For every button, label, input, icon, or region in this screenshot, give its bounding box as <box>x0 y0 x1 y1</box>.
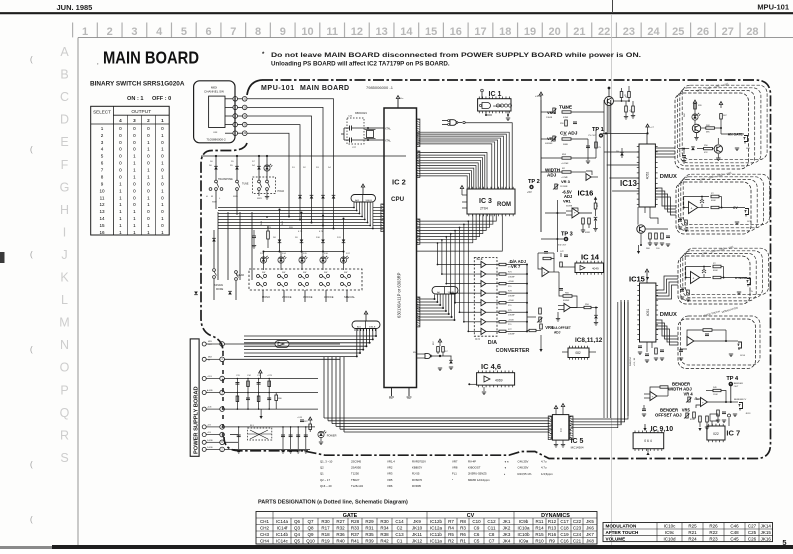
svg-text:16: 16 <box>450 26 462 38</box>
svg-text:JK11: JK11 <box>412 532 422 537</box>
svg-text:0: 0 <box>119 168 122 173</box>
svg-text:HOLD: HOLD <box>278 190 285 193</box>
svg-text:C22: C22 <box>573 519 582 524</box>
svg-text:0: 0 <box>119 147 122 152</box>
svg-text:0: 0 <box>119 133 122 138</box>
svg-text:0: 0 <box>147 133 150 138</box>
svg-text:R4: R4 <box>448 525 454 530</box>
svg-text:VR3: VR3 <box>387 472 393 476</box>
svg-text:0: 0 <box>119 174 122 179</box>
svg-text:TRANSPOSE: TRANSPOSE <box>218 178 233 181</box>
svg-text:0: 0 <box>119 154 122 159</box>
svg-text:E: E <box>60 135 68 149</box>
svg-text:0: 0 <box>147 161 150 166</box>
svg-text:R24: R24 <box>688 536 697 541</box>
svg-text:19: 19 <box>524 26 536 38</box>
svg-text:A: A <box>60 45 69 59</box>
svg-text:TP 1: TP 1 <box>592 127 604 133</box>
svg-text:13048: 13048 <box>546 117 553 119</box>
svg-text:Q2: Q2 <box>320 466 324 470</box>
svg-text:D: D <box>60 113 69 127</box>
svg-text:C2: C2 <box>397 525 403 530</box>
svg-text:7985006000 -1: 7985006000 -1 <box>366 85 394 90</box>
svg-text:13: 13 <box>376 26 388 38</box>
svg-text:0: 0 <box>161 209 164 214</box>
svg-text:23: 23 <box>623 26 635 38</box>
svg-text:C9: C9 <box>474 525 480 530</box>
svg-text:10: 10 <box>301 26 313 38</box>
svg-text:CH1: CH1 <box>260 519 269 524</box>
svg-text:IC9c: IC9c <box>665 530 675 535</box>
svg-text:600K: 600K <box>713 270 718 272</box>
svg-text:0: 0 <box>133 188 136 193</box>
svg-text:022: 022 <box>713 432 719 436</box>
svg-text:4051: 4051 <box>646 309 650 317</box>
svg-text:POWER SUPPLY BORAD: POWER SUPPLY BORAD <box>193 386 199 454</box>
svg-text:R15: R15 <box>535 532 544 537</box>
svg-text:1: 1 <box>101 126 104 131</box>
svg-text:MRZR 1A/10ppm: MRZR 1A/10ppm <box>468 478 490 482</box>
svg-text:DMUX: DMUX <box>660 312 677 318</box>
svg-text:0: 0 <box>133 195 136 200</box>
svg-text:R5: R5 <box>448 532 454 537</box>
svg-text:+350K: +350K <box>508 281 515 283</box>
svg-text:R34: R34 <box>380 525 389 530</box>
svg-text:C27: C27 <box>748 524 757 529</box>
svg-text:1: 1 <box>147 223 150 228</box>
svg-text:K: K <box>60 271 69 285</box>
svg-text:C12: C12 <box>487 519 496 524</box>
svg-text:1133NF: 1133NF <box>560 186 568 188</box>
svg-text:CH3: CH3 <box>260 532 269 537</box>
svg-text:TL28-134: TL28-134 <box>351 484 363 488</box>
svg-text:IC 6: IC 6 <box>475 337 480 341</box>
svg-text:C4: C4 <box>559 428 563 432</box>
svg-text:JK7: JK7 <box>586 532 594 537</box>
svg-text:11: 11 <box>100 195 105 200</box>
svg-text:5: 5 <box>101 154 104 159</box>
svg-text:R25: R25 <box>688 524 697 529</box>
svg-text:Q9: Q9 <box>307 532 314 537</box>
svg-text:MIDI: MIDI <box>208 357 212 359</box>
svg-text:0: 0 <box>147 188 150 193</box>
svg-text:IC10d: IC10d <box>663 536 676 541</box>
svg-text:TP 2: TP 2 <box>528 179 540 185</box>
svg-text:R16: R16 <box>548 532 557 537</box>
svg-text:C13: C13 <box>395 532 404 537</box>
svg-text:0: 0 <box>133 181 136 186</box>
svg-text:0: 0 <box>161 195 164 200</box>
svg-text:R8: R8 <box>460 519 466 524</box>
svg-text:IC9a: IC9a <box>519 538 529 543</box>
svg-text:0: 0 <box>161 223 164 228</box>
svg-text:2SC945: 2SC945 <box>351 459 362 463</box>
svg-text:JK15: JK15 <box>761 530 772 535</box>
svg-text:0: 0 <box>161 140 164 145</box>
svg-text:R26: R26 <box>709 524 718 529</box>
svg-text:K/BOOST: K/BOOST <box>468 466 481 470</box>
svg-text:3: 3 <box>131 26 137 38</box>
svg-text:R35: R35 <box>365 532 374 537</box>
svg-text:R1: R1 <box>460 538 466 543</box>
svg-text:1: 1 <box>161 118 164 123</box>
svg-text:51898: 51898 <box>566 206 573 208</box>
svg-text:VR7: VR7 <box>452 459 458 463</box>
svg-text:1: 1 <box>119 195 122 200</box>
svg-text:JK1: JK1 <box>503 519 511 524</box>
svg-text:C11: C11 <box>488 525 496 530</box>
svg-text:1/30NF: 1/30NF <box>508 314 515 316</box>
svg-text:1: 1 <box>161 230 164 235</box>
svg-text:OUT: OUT <box>734 386 739 388</box>
svg-text:R30: R30 <box>321 519 330 524</box>
svg-text:C48: C48 <box>730 530 739 535</box>
svg-text:SW: SW <box>324 272 327 274</box>
svg-text:B: B <box>60 68 68 82</box>
svg-text:JK12: JK12 <box>412 538 423 543</box>
svg-text:IC10c: IC10c <box>664 524 677 529</box>
svg-text:2T64: 2T64 <box>480 207 488 211</box>
svg-text:25: 25 <box>672 26 684 38</box>
svg-text:O: O <box>60 361 70 375</box>
svg-text:Q: Q <box>60 406 70 420</box>
svg-text:1/30NF: 1/30NF <box>508 276 515 278</box>
svg-text:M: M <box>59 316 69 330</box>
svg-text:(: ( <box>30 345 33 354</box>
svg-text:R40: R40 <box>336 538 345 543</box>
svg-text:R29: R29 <box>365 519 374 524</box>
svg-text:536LB: 536LB <box>369 326 376 328</box>
svg-text:0: 0 <box>147 126 150 131</box>
svg-text:JK10: JK10 <box>412 525 423 530</box>
svg-text:+15 B: +15 B <box>207 376 213 378</box>
svg-text:IC9b: IC9b <box>519 519 529 524</box>
svg-text:RVR0702V: RVR0702V <box>412 459 426 463</box>
svg-text:+5V: +5V <box>527 190 532 194</box>
svg-text:R33: R33 <box>351 525 360 530</box>
svg-text:C24: C24 <box>573 532 582 537</box>
svg-text:1: 1 <box>147 230 150 235</box>
svg-text:C48,35V: C48,35V <box>518 466 529 470</box>
svg-text:15: 15 <box>99 223 105 228</box>
svg-text:1: 1 <box>119 223 122 228</box>
svg-text:R23: R23 <box>709 536 718 541</box>
svg-text:150K: 150K <box>713 394 718 396</box>
svg-text:AN GATE: AN GATE <box>728 133 744 137</box>
svg-text:C46: C46 <box>730 524 739 529</box>
svg-text:CV OUT: CV OUT <box>588 135 597 137</box>
svg-text:CONVERTER: CONVERTER <box>496 348 530 354</box>
svg-text:SW1: SW1 <box>257 198 263 200</box>
svg-text:Q1: Q1 <box>320 472 324 476</box>
svg-text:1: 1 <box>133 161 136 166</box>
svg-text:IC 4,6: IC 4,6 <box>481 362 501 371</box>
svg-text:VOLUME: VOLUME <box>606 536 626 541</box>
svg-text:1: 1 <box>161 202 164 207</box>
svg-text:600K: 600K <box>711 200 716 202</box>
svg-text:IC11a: IC11a <box>430 538 442 543</box>
svg-text:1: 1 <box>161 133 164 138</box>
svg-text:0 6 4: 0 6 4 <box>644 439 652 443</box>
svg-text:JK3: JK3 <box>503 532 511 537</box>
svg-text:0: 0 <box>161 126 164 131</box>
svg-text:BENDERCV: BENDERCV <box>734 399 747 401</box>
svg-text:MODE: MODE <box>216 288 224 291</box>
svg-text:C46,35V: C46,35V <box>518 460 529 464</box>
svg-text:17: 17 <box>474 26 486 38</box>
svg-text:4.7u: 4.7u <box>541 460 547 464</box>
svg-text:C14: C14 <box>395 519 404 524</box>
svg-text:◄◄: ◄◄ <box>504 461 509 464</box>
svg-text:1: 1 <box>119 209 122 214</box>
svg-text:2N3RU-55NZ5: 2N3RU-55NZ5 <box>468 472 487 476</box>
svg-text:SW: SW <box>303 272 306 274</box>
svg-text:C6: C6 <box>474 532 480 537</box>
svg-text:0: 0 <box>147 181 150 186</box>
svg-text:VR2: VR2 <box>387 466 393 470</box>
svg-text:JK14: JK14 <box>761 524 772 529</box>
svg-text:2: 2 <box>101 133 104 138</box>
svg-text:JK16: JK16 <box>761 536 772 541</box>
svg-text:F: F <box>61 158 69 172</box>
svg-text:VR5: VR5 <box>682 408 691 413</box>
svg-text:27: 27 <box>722 26 734 38</box>
svg-text:7: 7 <box>230 26 236 38</box>
svg-text:18: 18 <box>499 26 511 38</box>
svg-text:Do not leave MAIN BOARD discon: Do not leave MAIN BOARD disconnected fro… <box>271 52 641 59</box>
svg-text:C5: C5 <box>474 538 480 543</box>
svg-text:CPU: CPU <box>391 196 405 203</box>
svg-text:R11: R11 <box>536 519 544 524</box>
svg-text:2: 2 <box>107 26 113 38</box>
svg-text:Q7: Q7 <box>307 519 314 524</box>
svg-text:24: 24 <box>647 26 660 38</box>
svg-text:4.7K: 4.7K <box>298 231 303 233</box>
svg-text:Unloading PS BOARD will affect: Unloading PS BOARD will affect IC2 TA717… <box>271 61 450 68</box>
svg-text:1: 1 <box>119 181 122 186</box>
svg-text:1: 1 <box>82 26 88 38</box>
svg-text:11: 11 <box>326 26 338 38</box>
svg-text:16: 16 <box>99 230 105 235</box>
svg-text:IC12a: IC12a <box>430 525 443 530</box>
svg-text:4: 4 <box>119 118 122 123</box>
svg-text:C19: C19 <box>560 532 569 537</box>
svg-text:SELECT: SELECT <box>93 110 111 115</box>
svg-text:R43,55 1%: R43,55 1% <box>518 472 532 476</box>
svg-text:D.GND: D.GND <box>207 440 213 442</box>
svg-text:P: P <box>60 383 68 397</box>
svg-text:12: 12 <box>99 202 105 207</box>
svg-text:MAIN BOARD: MAIN BOARD <box>300 85 350 92</box>
svg-text:VR1,4: VR1,4 <box>387 459 395 463</box>
svg-text:R21: R21 <box>688 530 697 535</box>
svg-text:XTAL: XTAL <box>385 140 391 143</box>
svg-text:+350K: +350K <box>508 300 515 302</box>
svg-text:VR 3: VR 3 <box>561 179 571 184</box>
svg-text:VR8: VR8 <box>452 466 458 470</box>
svg-text:R30: R30 <box>380 519 389 524</box>
svg-text:C26: C26 <box>748 536 757 541</box>
svg-text:1/30NF: 1/30NF <box>508 295 515 297</box>
svg-text:0: 0 <box>147 209 150 214</box>
svg-text:RVR05: RVR05 <box>412 484 421 488</box>
svg-text:1: 1 <box>119 216 122 221</box>
svg-text:R7: R7 <box>448 519 454 524</box>
svg-text:J: J <box>61 248 67 262</box>
svg-text:1: 1 <box>147 202 150 207</box>
svg-text:C: C <box>60 90 69 104</box>
svg-text:Q6: Q6 <box>294 519 301 524</box>
svg-text:JK14: JK14 <box>740 355 746 357</box>
svg-text:POWER: POWER <box>327 434 337 438</box>
svg-text:C1: C1 <box>397 538 403 543</box>
svg-text:40H000: 40H000 <box>493 104 503 108</box>
svg-text:1: 1 <box>133 168 136 173</box>
svg-text:A.GND: A.GND <box>207 389 213 392</box>
svg-text:IC12b: IC12b <box>430 519 443 524</box>
svg-text:JK5: JK5 <box>586 519 594 524</box>
svg-text:1: 1 <box>133 216 136 221</box>
svg-text:JK4: JK4 <box>503 538 511 543</box>
svg-text:C16: C16 <box>560 538 569 543</box>
svg-text:1/30NF: 1/30NF <box>508 334 515 336</box>
svg-text:Q1 ,3 ~10: Q1 ,3 ~10 <box>320 459 333 463</box>
svg-text:(: ( <box>30 55 33 64</box>
svg-text:IC 14: IC 14 <box>581 253 600 262</box>
svg-text:0: 0 <box>161 168 164 173</box>
svg-text:IC14b: IC14b <box>276 532 289 537</box>
svg-text:635R: 635R <box>563 117 569 119</box>
svg-text:1: 1 <box>161 188 164 193</box>
svg-text:ADJ: ADJ <box>554 331 561 335</box>
svg-text:1: 1 <box>133 223 136 228</box>
svg-text:600NF: 600NF <box>563 300 570 302</box>
svg-text:1: 1 <box>147 147 150 152</box>
svg-text:1: 1 <box>147 195 150 200</box>
svg-text:4.7u: 4.7u <box>541 466 547 470</box>
svg-text:R28: R28 <box>351 519 360 524</box>
svg-text:2SA950: 2SA950 <box>351 466 361 470</box>
svg-text:Q5: Q5 <box>294 538 301 543</box>
svg-text:3: 3 <box>133 118 136 123</box>
svg-text:FL1: FL1 <box>452 472 457 476</box>
svg-text:OFF: OFF <box>213 132 218 134</box>
svg-text:OUTPUT: OUTPUT <box>131 109 151 115</box>
svg-text:1: 1 <box>133 174 136 179</box>
svg-text:1/4,5ppm: 1/4,5ppm <box>541 472 553 476</box>
svg-text:28: 28 <box>746 26 758 38</box>
svg-text:R9: R9 <box>549 538 555 543</box>
svg-text:438R: 438R <box>585 232 590 234</box>
svg-text:6301X0A11P or 6303RP: 6301X0A11P or 6303RP <box>397 272 402 318</box>
svg-text:IC13: IC13 <box>620 179 637 188</box>
svg-text:TP 4: TP 4 <box>726 376 739 382</box>
svg-text:R3: R3 <box>460 525 466 530</box>
svg-text:◄: ◄ <box>504 467 506 470</box>
svg-text:RV6070: RV6070 <box>412 478 423 482</box>
svg-text:IC16: IC16 <box>578 189 594 198</box>
svg-text:4.7K: 4.7K <box>319 231 324 233</box>
svg-text:1: 1 <box>147 168 150 173</box>
svg-text:IC 7: IC 7 <box>726 429 740 438</box>
svg-text:0: 0 <box>119 140 122 145</box>
svg-text:IC 5: IC 5 <box>571 438 584 445</box>
svg-text:C45: C45 <box>730 536 739 541</box>
svg-text:M: M <box>211 196 213 198</box>
svg-text:Q16 ~ 20: Q16 ~ 20 <box>320 484 332 488</box>
svg-text:JK8: JK8 <box>586 538 594 543</box>
svg-text:2VOICE: 2VOICE <box>282 295 292 299</box>
svg-text:CH2: CH2 <box>260 525 269 530</box>
svg-text:T1250: T1250 <box>351 472 359 476</box>
svg-text:DYNAMICS: DYNAMICS <box>735 276 750 280</box>
svg-text:C23: C23 <box>573 525 582 530</box>
svg-text:IC14c: IC14c <box>276 538 289 543</box>
svg-text:0: 0 <box>133 133 136 138</box>
svg-text:DMUX: DMUX <box>660 174 677 180</box>
svg-text:IC14f: IC14f <box>277 525 289 530</box>
svg-text:Q2 ~ 17: Q2 ~ 17 <box>320 478 330 482</box>
svg-text:R22: R22 <box>709 530 718 535</box>
svg-text:0: 0 <box>147 216 150 221</box>
svg-text:IC 3: IC 3 <box>479 198 492 205</box>
svg-text:1: 1 <box>133 154 136 159</box>
svg-text:R19: R19 <box>321 538 330 543</box>
svg-text:S: S <box>60 451 68 465</box>
svg-text:TUNE: TUNE <box>242 183 249 186</box>
svg-text:3: 3 <box>101 140 104 145</box>
svg-text:R14: R14 <box>535 525 544 530</box>
svg-text:1: 1 <box>161 161 164 166</box>
svg-text:(: ( <box>30 250 33 259</box>
svg-text:MODULATION: MODULATION <box>606 524 637 529</box>
svg-text:IC14a: IC14a <box>276 519 289 524</box>
svg-text:0: 0 <box>133 140 136 145</box>
svg-text:XTAL: XTAL <box>385 128 391 131</box>
svg-text:21: 21 <box>573 26 585 38</box>
svg-text:8: 8 <box>101 174 104 179</box>
svg-text:R10: R10 <box>535 538 544 543</box>
svg-text:AFTER TOUCH: AFTER TOUCH <box>606 530 640 535</box>
svg-text:1: 1 <box>119 230 122 235</box>
svg-text:R18: R18 <box>321 532 330 537</box>
svg-text:T5D27: T5D27 <box>351 478 360 482</box>
svg-text:+: + <box>574 211 576 215</box>
svg-text:+: + <box>693 277 695 281</box>
svg-text:(: ( <box>30 460 33 469</box>
svg-text:R42: R42 <box>380 538 389 543</box>
svg-text:JK13: JK13 <box>745 413 751 415</box>
svg-text:(: ( <box>30 145 33 154</box>
svg-text:ADJ: ADJ <box>547 173 557 178</box>
svg-text:9: 9 <box>101 181 104 186</box>
svg-text:0: 0 <box>133 126 136 131</box>
svg-text:+: + <box>652 395 654 399</box>
svg-text:12: 12 <box>351 26 363 38</box>
svg-text:MPU-101: MPU-101 <box>757 3 789 12</box>
svg-text:536LB: 536LB <box>365 200 372 202</box>
svg-text:RV-4P: RV-4P <box>468 459 476 463</box>
svg-text:10: 10 <box>99 188 105 193</box>
svg-text:R12: R12 <box>548 519 557 524</box>
svg-text:TP 3: TP 3 <box>561 232 573 238</box>
svg-text:2: 2 <box>147 118 150 123</box>
svg-text:1: 1 <box>161 174 164 179</box>
svg-text:4052: 4052 <box>645 172 649 180</box>
svg-text:IC8,11,12: IC8,11,12 <box>575 337 603 344</box>
svg-text:I: I <box>63 225 66 239</box>
svg-text:SW: SW <box>282 272 285 274</box>
